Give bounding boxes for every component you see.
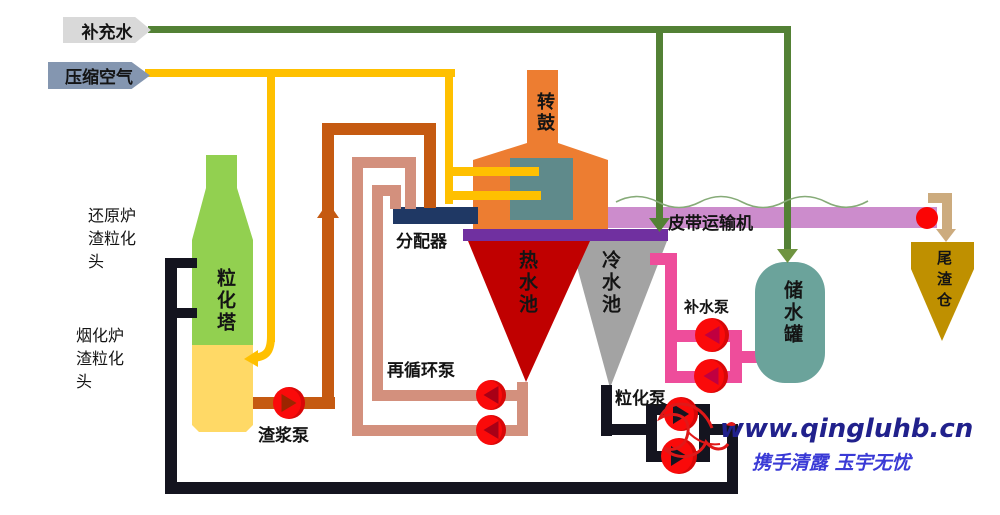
pump-impeller-icon [671, 446, 687, 466]
pipe-makeup-vertical [665, 253, 677, 383]
slurry-pump [273, 387, 305, 419]
cold-pool-label: 冷水池 [597, 250, 624, 316]
granulation-pump-label: 粒化泵 [615, 384, 666, 409]
belt-conveyor-label: 皮带运输机 [668, 209, 753, 234]
air-line-drum-stub-2 [445, 191, 541, 200]
pipe-head-stub-top [165, 258, 197, 268]
belt-conveyor-bar [600, 207, 937, 228]
makeup-pump-2 [694, 359, 728, 393]
pump-impeller-icon [673, 404, 689, 424]
tag-compressed-air: 压缩空气 [48, 62, 150, 89]
pipe-makeup-loop-right [730, 330, 742, 383]
tag-makeup-water-label: 补充水 [82, 18, 133, 43]
pipe-hotpool-drop [517, 382, 528, 436]
air-line-horizontal [145, 69, 455, 77]
granulation-pump-1 [664, 397, 698, 431]
reduction-head-label: 还原炉渣粒化头 [88, 204, 146, 273]
watermark-url: www.qingluhb.cn [720, 414, 973, 444]
pipe-bottom-return [165, 482, 738, 494]
fuming-head-label: 烟化炉渣粒化头 [76, 324, 134, 393]
watermark-slogan: 携手清露 玉宇无忧 [752, 448, 911, 475]
recirculation-pump-1 [476, 380, 506, 410]
collector-bar [463, 229, 668, 241]
air-line-drum-vertical [445, 69, 453, 204]
slurry-pump-label: 渣浆泵 [258, 421, 309, 446]
makeup-pump-label: 补水泵 [684, 296, 729, 317]
makeup-pump-1 [695, 318, 729, 352]
pump-impeller-icon [704, 367, 719, 385]
water-line-tank-branch [784, 26, 791, 252]
recirculation-pump-2 [476, 415, 506, 445]
recirculation-pump-label: 再循环泵 [387, 356, 455, 381]
water-line-belt-branch [656, 26, 663, 220]
tailings-chute-vert [942, 193, 952, 231]
pipe-recirc-inner-left [372, 185, 383, 401]
pipe-slurry-down-to-drum [424, 123, 436, 208]
pipe-slurry-top [322, 123, 436, 135]
distributor-label: 分配器 [396, 227, 447, 252]
pipe-tower-feed-vertical [165, 258, 177, 494]
process-flow-diagram: 补充水 压缩空气 转鼓 分配器 热水池 冷水池 皮带运输机 尾渣仓 补水泵 储水… [0, 0, 1000, 515]
tailings-bin-label: 尾渣仓 [934, 250, 955, 313]
air-line-drum-stub-1 [445, 167, 539, 176]
belt-end-roller [916, 207, 938, 229]
pump-impeller-icon [484, 386, 499, 404]
storage-tank-label: 储水罐 [779, 280, 806, 346]
pump-impeller-icon [484, 421, 499, 439]
pipe-recirc-inner-right [390, 185, 401, 209]
tower-liquid-yellow [192, 345, 253, 432]
pipe-slurry-up [322, 128, 334, 409]
pipe-coldpool-toloop [601, 424, 651, 435]
pump-impeller-icon [705, 326, 720, 344]
belt-water-wave-line [616, 197, 868, 208]
tower-label: 粒化塔 [212, 268, 239, 334]
pipe-head-stub-bottom [165, 308, 197, 318]
pump-impeller-icon [282, 394, 297, 412]
tag-makeup-water: 补充水 [63, 17, 151, 43]
hot-pool-label: 热水池 [514, 250, 541, 316]
air-line-tower-branch [267, 69, 275, 342]
granulation-pump-2 [661, 438, 697, 474]
distributor-bar [393, 207, 478, 224]
pipe-recirc-outer-right [405, 157, 416, 209]
pipe-recirc-outer-left [352, 157, 363, 436]
drum-label: 转鼓 [531, 92, 557, 134]
tag-compressed-air-label: 压缩空气 [65, 63, 133, 88]
water-line-horizontal [148, 26, 791, 33]
